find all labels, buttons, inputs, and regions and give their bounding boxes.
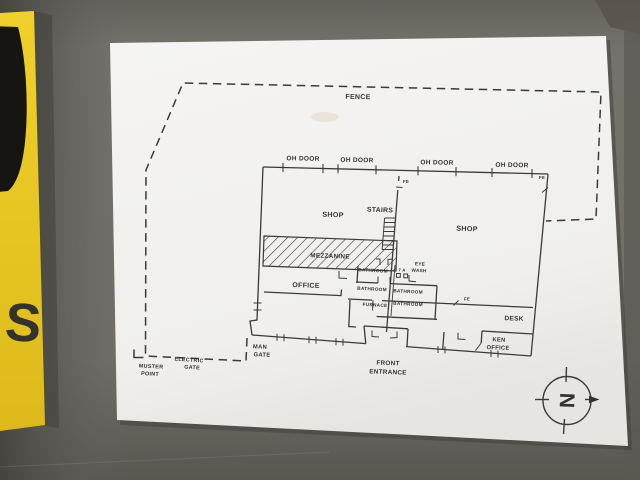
label-shop-east: SHOP [456,224,478,234]
door-swing-fe-top [396,187,403,188]
label-front-entrance-line1: FRONT [376,360,399,368]
label-electric-gate-line2: GATE [184,364,200,371]
label-eye-wash-line1: EYE [415,261,426,267]
label-oh-door-2: OH DOOR [340,157,373,165]
label-muster-point-line1: MUSTER [139,363,164,370]
label-man-gate-line2: GATE [253,352,270,359]
yellow-wall-sign: S [0,11,59,431]
compass-north-label: N [555,393,579,409]
label-ken-office-line2: OFFICE [486,345,509,352]
label-desk: DESK [504,315,523,323]
label-fence: FENCE [345,94,370,101]
label-oh-door-3: OH DOOR [420,159,453,167]
label-stairs: STAIRS [367,207,394,215]
paper-stain [311,112,339,122]
label-mezzanine: MEZZANINE [310,252,350,260]
label-muster-point-line2: POINT [141,371,160,378]
sign-letter: S [3,292,43,354]
label-eye-wash-line2: WASH [411,268,427,274]
label-shop-west: SHOP [322,210,344,220]
label-ken-office-line1: KEN [492,337,505,343]
label-man-gate-line1: MAN [253,344,267,350]
label-fe-northeast: FE [539,175,545,180]
label-oh-door-1: OH DOOR [286,155,319,163]
label-fe-mid: FE [464,297,470,302]
floor-plan-photo: S [0,0,640,480]
label-oh-door-4: OH DOOR [495,162,528,170]
label-front-entrance-line2: ENTRANCE [369,368,407,376]
label-fe-stairs: FE [403,179,409,184]
label-office: OFFICE [292,282,320,290]
label-first-aid: 7 A [398,267,406,272]
photo-floor-plan-scene: S [0,0,640,480]
